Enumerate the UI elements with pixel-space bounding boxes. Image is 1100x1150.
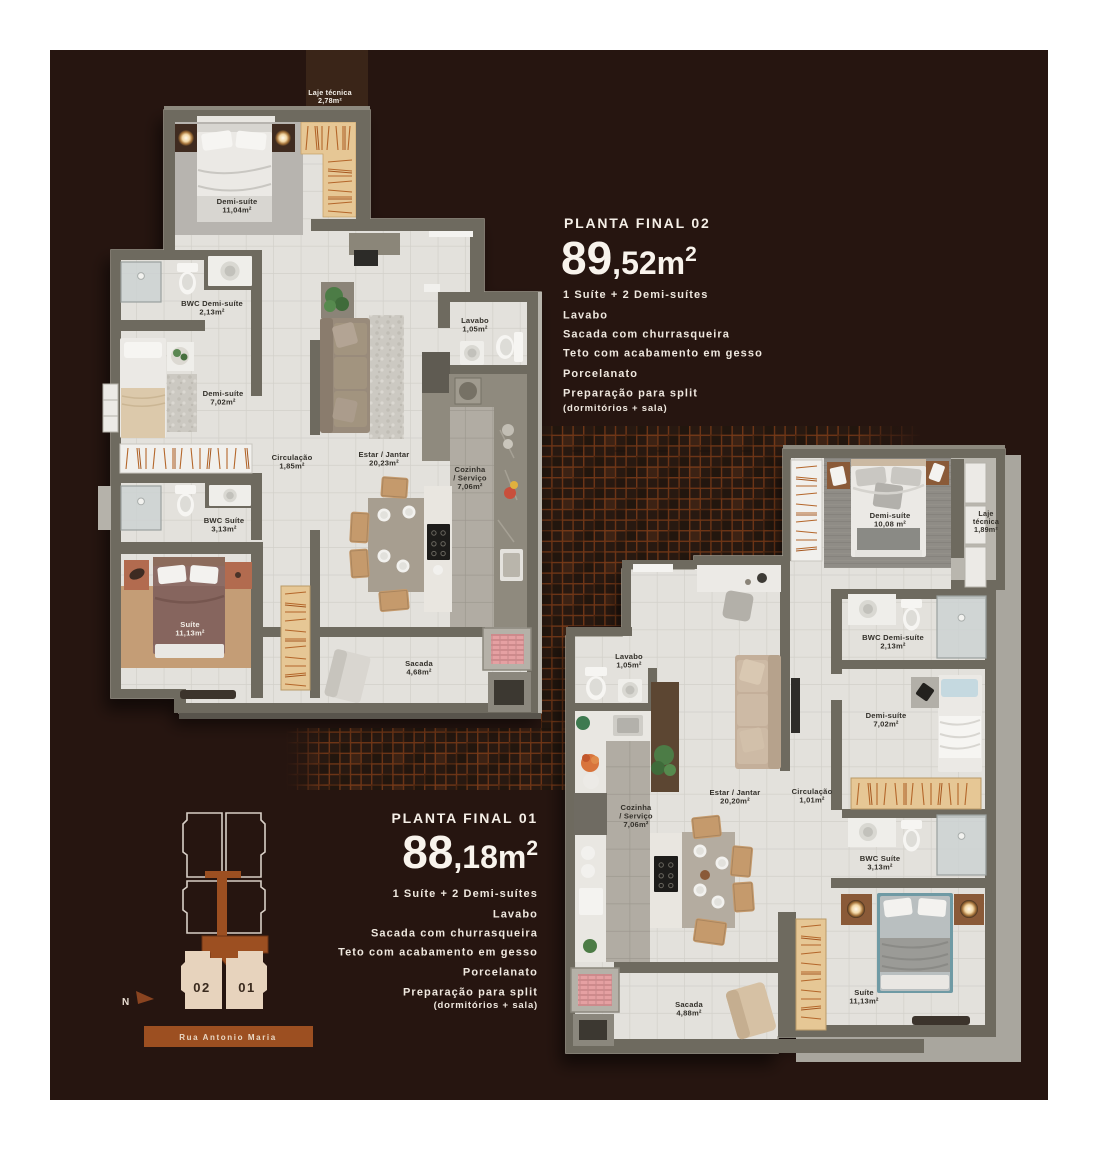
svg-text:N: N [122, 997, 129, 1008]
svg-text:Lavabo: Lavabo [493, 909, 538, 921]
svg-text:Demi-suíte10,08 m²: Demi-suíte10,08 m² [870, 511, 911, 529]
svg-text:Porcelanato: Porcelanato [563, 368, 638, 380]
svg-text:Cozinha/ Serviço7,06m²: Cozinha/ Serviço7,06m² [453, 465, 487, 491]
svg-text:Sacada4,68m²: Sacada4,68m² [405, 659, 433, 677]
svg-text:Lavabo1,05m²: Lavabo1,05m² [615, 652, 643, 670]
svg-text:Preparação para split: Preparação para split [403, 987, 538, 999]
svg-text:Cozinha/ Serviço7,06m²: Cozinha/ Serviço7,06m² [619, 803, 653, 829]
svg-text:1 Suíte + 2 Demi-suítes: 1 Suíte + 2 Demi-suítes [563, 289, 708, 301]
svg-text:Teto com acabamento em gesso: Teto com acabamento em gesso [338, 947, 538, 959]
svg-text:Sacada4,88m²: Sacada4,88m² [675, 1000, 703, 1018]
svg-text:Lavabo1,05m²: Lavabo1,05m² [461, 316, 489, 334]
svg-text:Preparação para split: Preparação para split [563, 388, 698, 400]
svg-text:02: 02 [193, 980, 210, 995]
svg-text:Sacada com churrasqueira: Sacada com churrasqueira [563, 329, 730, 341]
svg-text:Demi-suíte11,04m²: Demi-suíte11,04m² [217, 197, 258, 215]
svg-text:Porcelanato: Porcelanato [463, 967, 538, 979]
svg-text:PLANTA FINAL 02: PLANTA FINAL 02 [564, 215, 711, 231]
svg-text:(dormitórios + sala): (dormitórios + sala) [563, 403, 667, 414]
svg-text:PLANTA FINAL 01: PLANTA FINAL 01 [391, 810, 538, 826]
svg-text:Teto com acabamento em gesso: Teto com acabamento em gesso [563, 348, 763, 360]
svg-text:Sacada com churrasqueira: Sacada com churrasqueira [371, 928, 538, 940]
svg-text:Lavabo: Lavabo [563, 310, 608, 322]
svg-text:1 Suíte + 2 Demi-suítes: 1 Suíte + 2 Demi-suítes [393, 888, 538, 900]
svg-text:Rua Antonio Maria: Rua Antonio Maria [179, 1033, 277, 1042]
svg-text:(dormitórios + sala): (dormitórios + sala) [434, 1000, 538, 1011]
svg-text:01: 01 [238, 980, 255, 995]
